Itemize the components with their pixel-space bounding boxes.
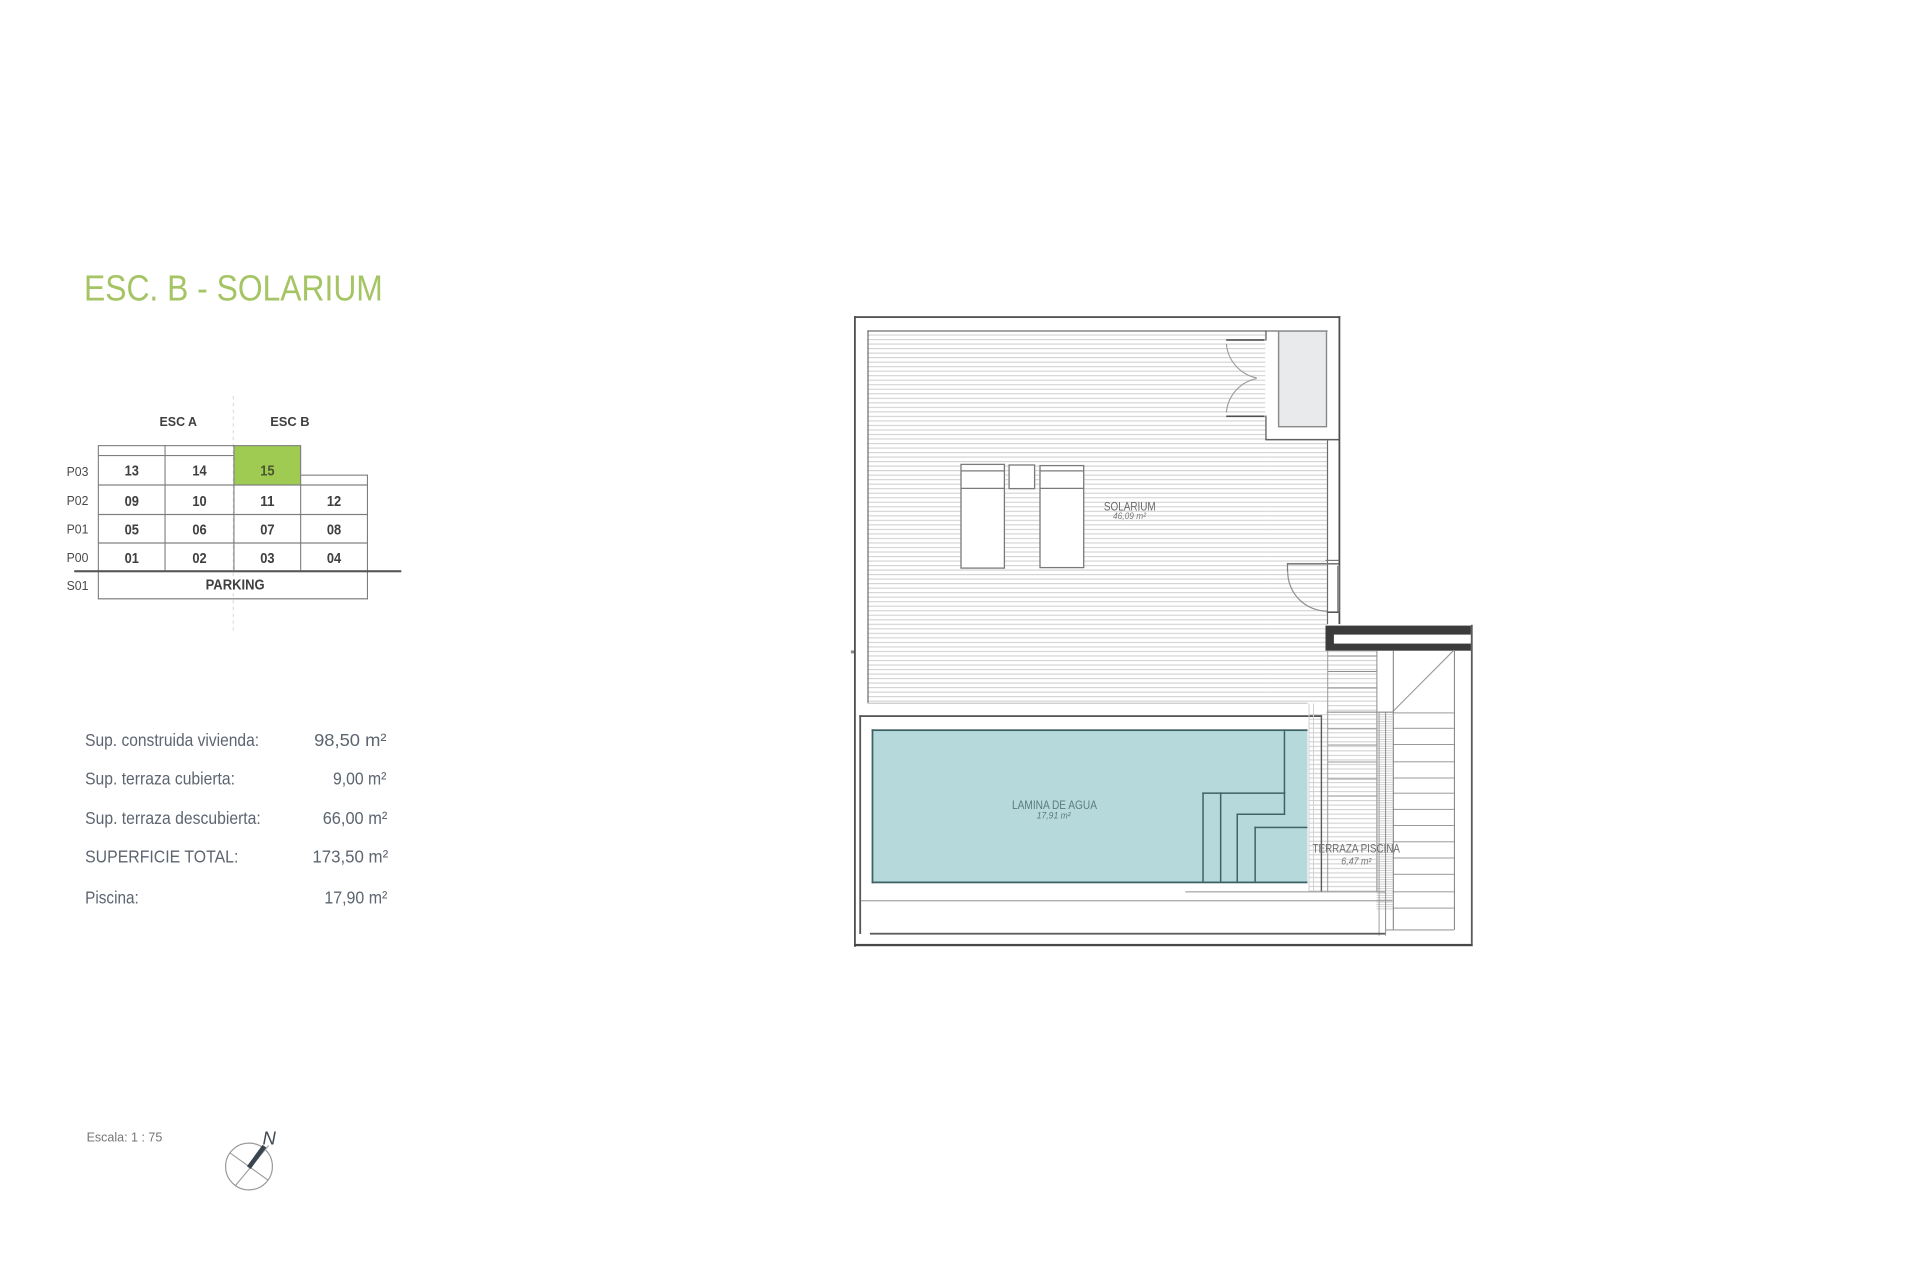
svg-text:Sup. terraza descubierta:: Sup. terraza descubierta: bbox=[85, 808, 261, 828]
svg-text:13: 13 bbox=[125, 463, 139, 479]
svg-text:173,50 m²: 173,50 m² bbox=[312, 847, 388, 867]
svg-text:Sup. construida vivienda:: Sup. construida vivienda: bbox=[85, 730, 259, 750]
svg-text:08: 08 bbox=[327, 522, 341, 538]
svg-text:11: 11 bbox=[260, 494, 274, 510]
svg-text:ESC B: ESC B bbox=[270, 414, 309, 429]
svg-text:07: 07 bbox=[260, 522, 274, 538]
svg-text:S01: S01 bbox=[67, 578, 89, 593]
svg-text:Escala: 1 : 75: Escala: 1 : 75 bbox=[87, 1131, 163, 1145]
svg-text:P01: P01 bbox=[67, 521, 89, 536]
svg-text:PARKING: PARKING bbox=[206, 578, 265, 594]
svg-text:46,09 m²: 46,09 m² bbox=[1113, 511, 1147, 522]
svg-text:15: 15 bbox=[260, 463, 274, 479]
svg-text:6,47 m²: 6,47 m² bbox=[1341, 856, 1372, 867]
svg-text:P00: P00 bbox=[67, 550, 89, 565]
svg-text:17,90 m²: 17,90 m² bbox=[324, 887, 387, 907]
svg-text:06: 06 bbox=[192, 522, 206, 538]
svg-text:P02: P02 bbox=[67, 493, 89, 508]
svg-text:02: 02 bbox=[192, 551, 206, 567]
svg-text:P03: P03 bbox=[67, 464, 89, 479]
svg-text:05: 05 bbox=[125, 522, 139, 538]
svg-text:ESC. B - SOLARIUM: ESC. B - SOLARIUM bbox=[84, 268, 383, 309]
svg-text:98,50 m²: 98,50 m² bbox=[314, 730, 387, 750]
svg-text:Sup. terraza cubierta:: Sup. terraza cubierta: bbox=[85, 769, 235, 789]
svg-text:04: 04 bbox=[327, 551, 342, 567]
svg-text:ESC A: ESC A bbox=[160, 414, 198, 429]
svg-text:01: 01 bbox=[125, 551, 139, 567]
svg-text:14: 14 bbox=[192, 463, 207, 479]
svg-text:03: 03 bbox=[260, 551, 274, 567]
svg-text:N: N bbox=[263, 1128, 277, 1149]
svg-text:10: 10 bbox=[192, 494, 206, 510]
svg-text:TERRAZA PISCINA: TERRAZA PISCINA bbox=[1313, 842, 1401, 856]
svg-text:66,00 m²: 66,00 m² bbox=[323, 808, 388, 828]
svg-text:SUPERFICIE TOTAL:: SUPERFICIE TOTAL: bbox=[85, 847, 238, 867]
svg-text:12: 12 bbox=[327, 494, 341, 510]
svg-text:17,91 m²: 17,91 m² bbox=[1037, 811, 1072, 822]
svg-text:09: 09 bbox=[125, 494, 139, 510]
svg-text:9,00 m²: 9,00 m² bbox=[333, 769, 387, 789]
svg-text:Piscina:: Piscina: bbox=[85, 887, 139, 907]
